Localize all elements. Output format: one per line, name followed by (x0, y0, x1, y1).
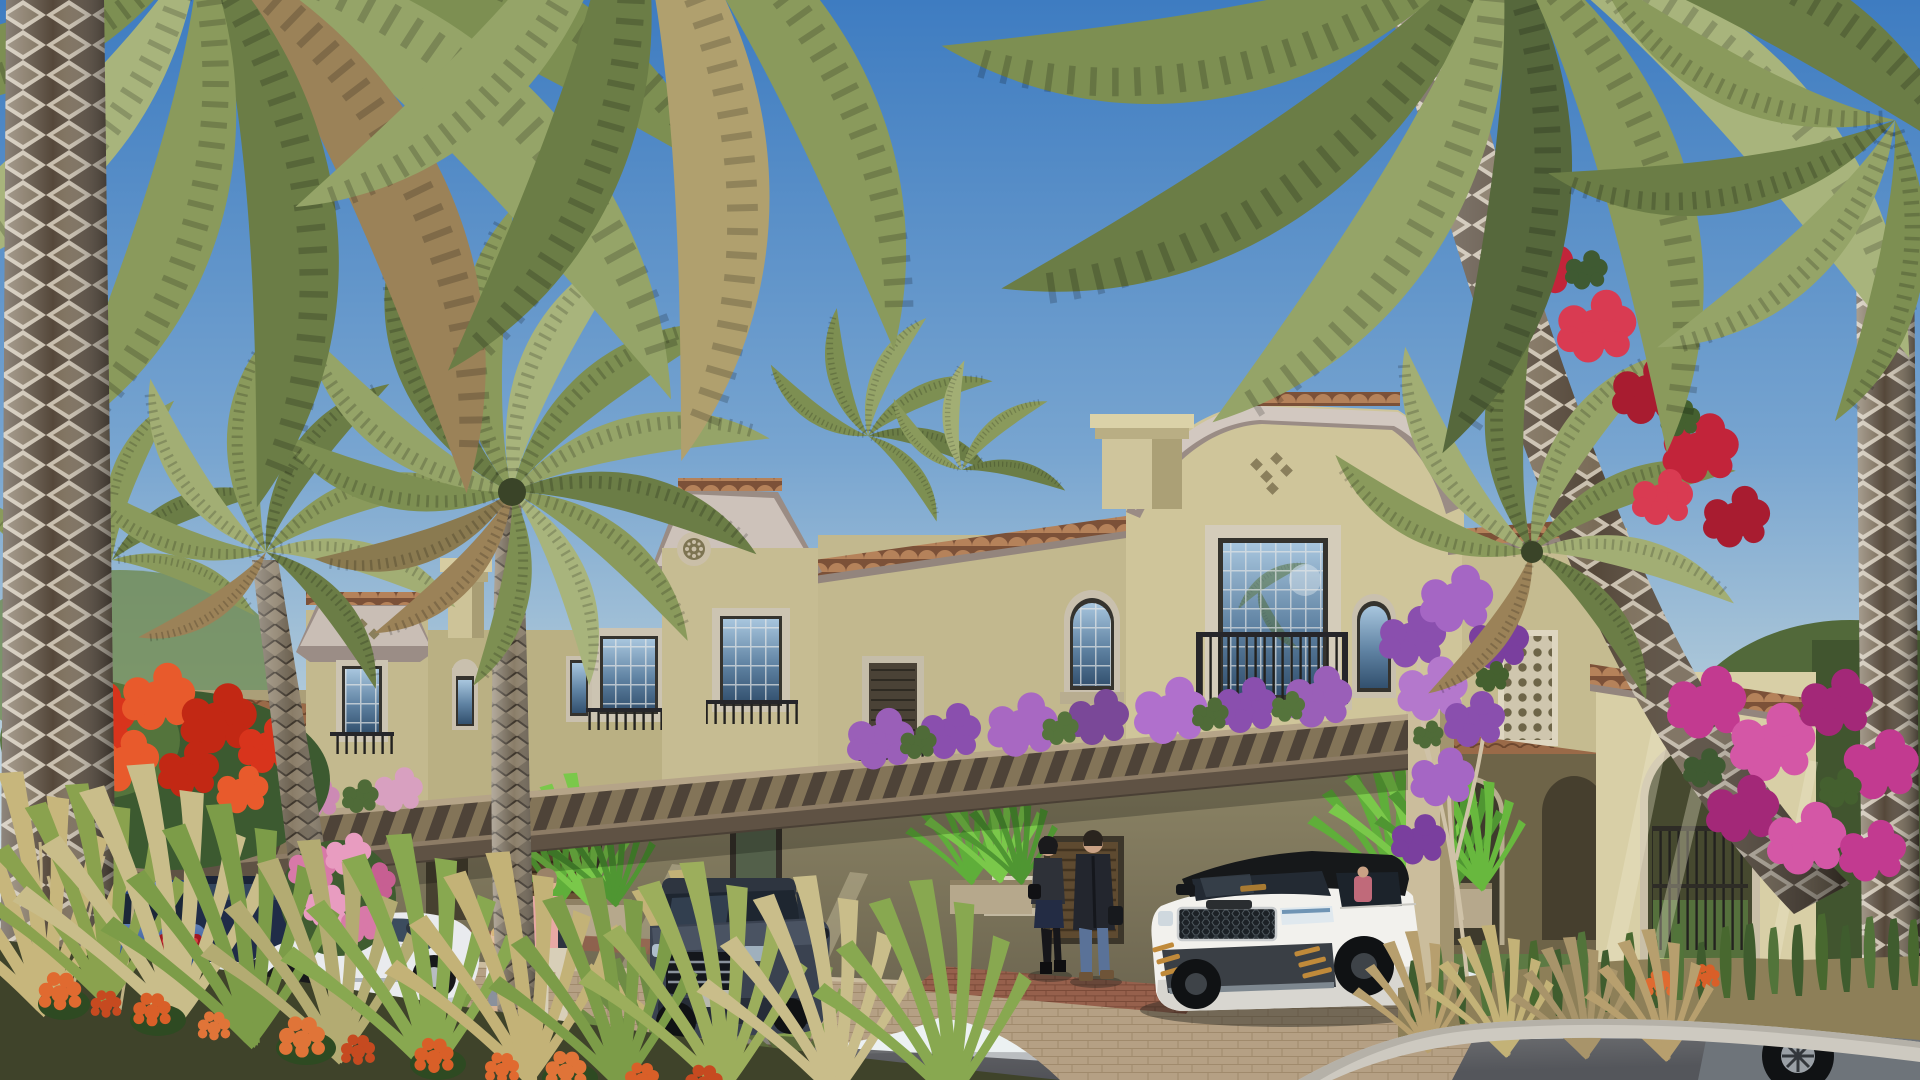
scene-canvas: Mediterranean townhouse community render… (0, 0, 1920, 1080)
architectural-rendering: Mediterranean townhouse community render… (0, 0, 1920, 1080)
arched-window-upper (1060, 590, 1124, 704)
